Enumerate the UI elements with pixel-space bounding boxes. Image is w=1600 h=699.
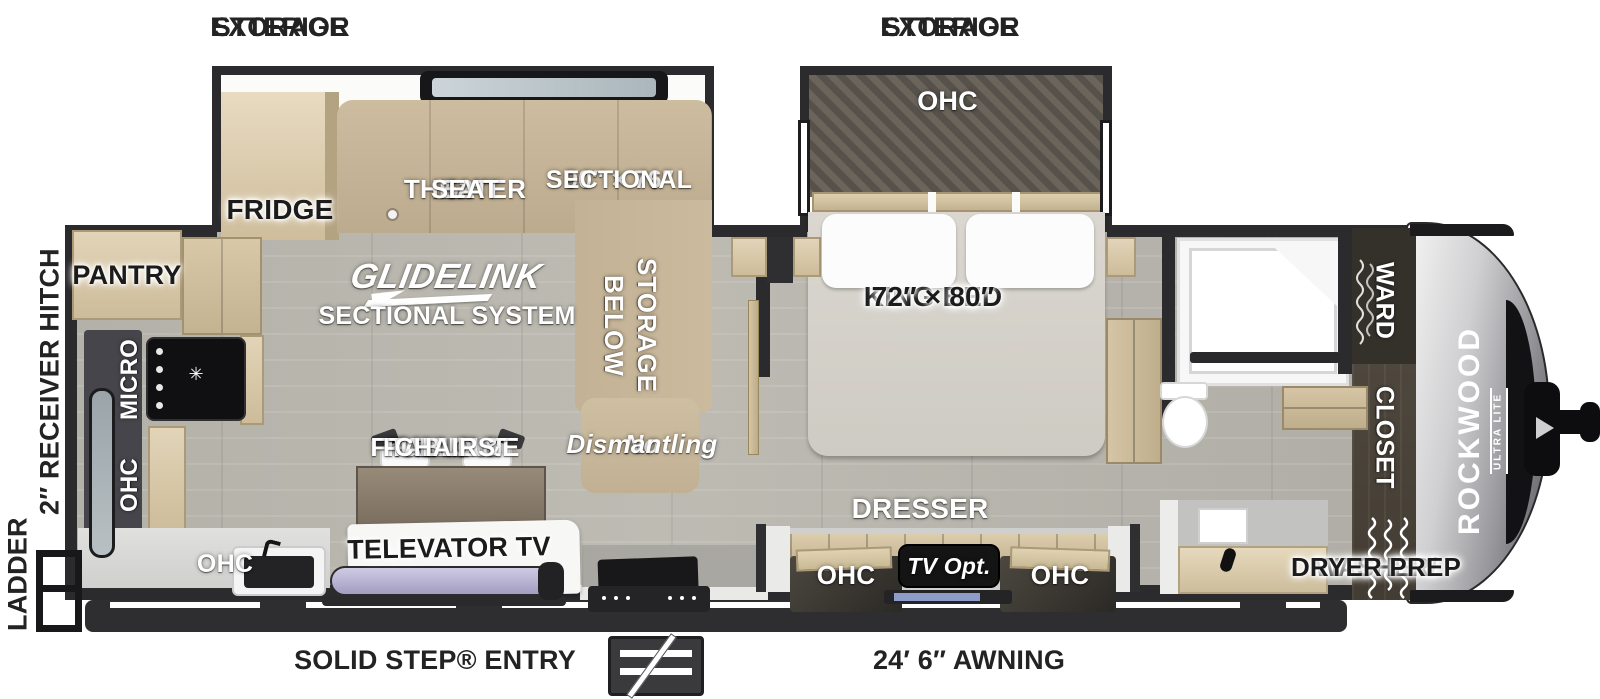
- ohc-label: OHC: [798, 560, 894, 590]
- tv-base: [322, 596, 566, 606]
- vanity-mirror: [1198, 508, 1248, 544]
- bedroom-window: [798, 120, 810, 216]
- awning-label: 24′ 6″ AWNING: [812, 642, 1126, 680]
- rv-floorplan: ✳: [0, 0, 1600, 699]
- fridge-label: FRIDGE: [218, 194, 342, 226]
- wall-top-between-slides: [711, 225, 807, 237]
- toilet-icon: [1162, 396, 1208, 448]
- label-line: SEAT: [431, 175, 499, 203]
- label-line: CHAIRS: [395, 433, 496, 461]
- closet-label: CLOSET: [1364, 370, 1404, 504]
- televator-tv-label: TELEVATOR TV: [336, 532, 562, 566]
- burner-icon: [156, 348, 163, 355]
- griddle-icon: [588, 586, 710, 612]
- label-line: SECTIONAL: [546, 167, 692, 194]
- shelf-gap: [1012, 192, 1020, 212]
- dresser-wall: [756, 524, 766, 592]
- theater-seat-label: 52″ THEATER SEAT: [385, 144, 545, 234]
- tv-endcap: [538, 562, 564, 600]
- bedroom-tv-screen: [894, 593, 980, 601]
- griddle-knobs-icon: [602, 596, 606, 600]
- label-line: Dismantling: [567, 430, 718, 458]
- storage-below-label-1: STORAGE: [630, 250, 664, 402]
- ultra-lite-brand-label: ULTRA LITE: [1490, 388, 1508, 474]
- no-dismantling-label: No Dismantling: [566, 418, 718, 470]
- closet-pocket-door: [1282, 386, 1368, 430]
- burner-icon: [156, 402, 163, 409]
- wardrobe-label: WARD: [1364, 246, 1404, 356]
- washer-dryer-prep-label: WASHER/ DRYER PREP: [1278, 536, 1474, 598]
- burner-icon: [156, 384, 163, 391]
- glidelink-logo: GLIDELINK: [333, 258, 560, 296]
- nightstand: [1106, 237, 1136, 277]
- bathroom-wall: [1338, 228, 1352, 374]
- rockwood-brand-label: ROCKWOOD: [1452, 318, 1488, 544]
- entry-steps: [608, 636, 704, 696]
- pantry-label: PANTRY: [58, 260, 196, 292]
- slide-window-glass: [432, 78, 656, 97]
- ohc-label: OHC: [110, 446, 150, 524]
- label-line: DRYER PREP: [1291, 553, 1461, 581]
- burner-flame-icon: ✳: [186, 364, 206, 384]
- hitch-coupler-icon: [1536, 417, 1554, 439]
- vanity-wall: [1160, 500, 1178, 594]
- king-bed-label: KING BED 72″ × 80″: [828, 264, 1038, 330]
- nightstand: [793, 237, 821, 277]
- wardrobe-gap: [767, 237, 793, 283]
- micro-label: MICRO: [110, 334, 150, 426]
- nightstand: [731, 237, 767, 277]
- tv-screen: [330, 566, 546, 596]
- bathroom-pocket-door: [1106, 318, 1162, 464]
- label-line: 72″ × 80″: [872, 282, 995, 312]
- griddle-lid-icon: [598, 556, 699, 589]
- step-tread: [620, 668, 692, 675]
- awning-rail: [110, 602, 1320, 608]
- dresser-endcap: [766, 526, 790, 592]
- ladder-rung-icon: [36, 585, 82, 592]
- shelf-gap: [928, 192, 936, 212]
- label-line: STORAGE: [213, 13, 347, 42]
- storage-below-label-2: BELOW: [597, 256, 631, 396]
- ohc-label: OHC: [1012, 560, 1108, 590]
- bedroom-window: [1100, 120, 1112, 216]
- sectional-system-label: SECTIONAL SYSTEM: [328, 302, 566, 330]
- burner-icon: [156, 366, 163, 373]
- dresser-label: DRESSER: [830, 494, 1010, 524]
- exterior-storage-label-right: EXTERIOR STORAGE: [820, 0, 1080, 56]
- dresser-wall: [1130, 524, 1140, 592]
- lower-cabinet: [148, 426, 186, 534]
- headboard-shelf: [812, 192, 1102, 212]
- hitch-handle-icon: [1580, 402, 1600, 442]
- sectional-label: 90″ × 76″ SECTIONAL: [540, 150, 698, 210]
- label-line: STORAGE: [883, 13, 1017, 42]
- ohc-label: OHC: [178, 550, 272, 578]
- tv-option-label: TV Opt.: [898, 544, 1000, 588]
- exterior-storage-label-left: EXTERIOR STORAGE: [150, 0, 410, 56]
- shower-door: [1190, 352, 1340, 363]
- cap-trim: [1410, 224, 1514, 236]
- fireplace-pullout-label: FIREPLACE PULLOUT TABLE & CHAIRS: [352, 386, 538, 508]
- sliding-door: [748, 300, 759, 455]
- solid-step-entry-label: SOLID STEP® ENTRY: [278, 642, 592, 680]
- ohc-label: OHC: [890, 86, 1005, 118]
